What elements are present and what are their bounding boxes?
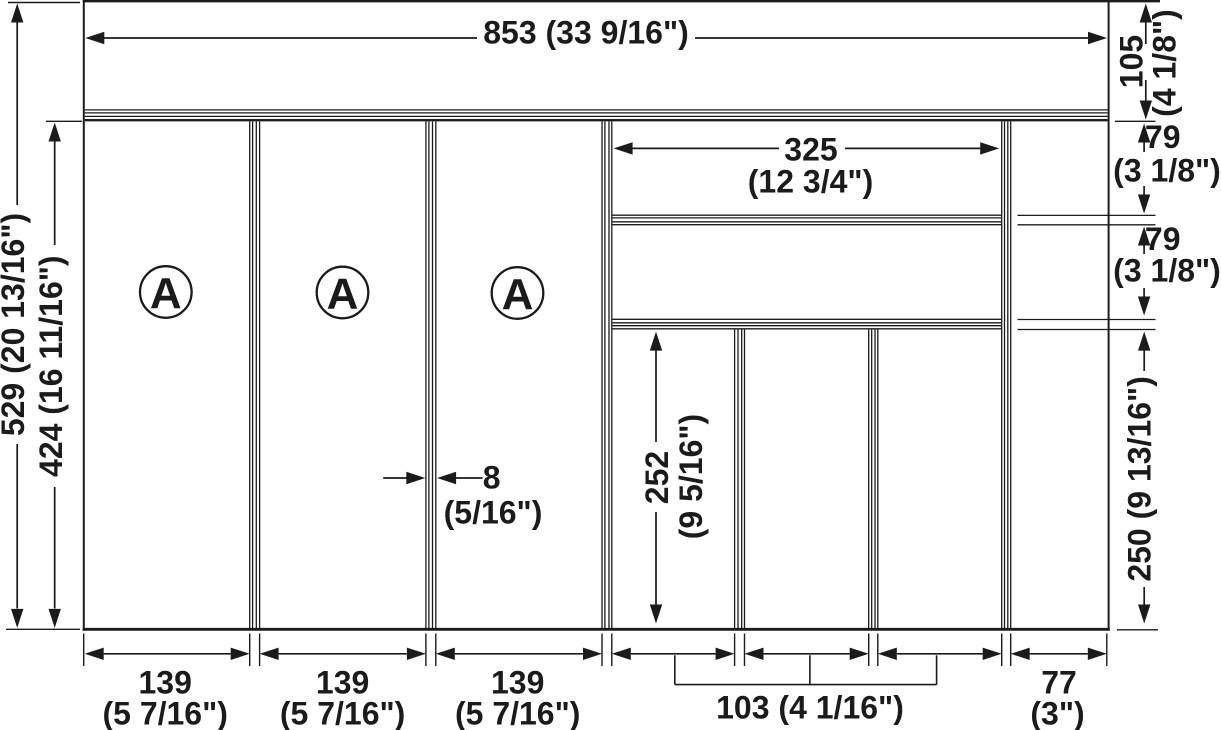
svg-text:79: 79	[1145, 119, 1181, 155]
svg-text:424 (16 11/16"): 424 (16 11/16")	[33, 255, 69, 477]
svg-text:A: A	[327, 270, 359, 319]
svg-text:A: A	[502, 270, 534, 319]
svg-text:103 (4 1/16"): 103 (4 1/16")	[716, 689, 904, 725]
svg-text:(12 3/4"): (12 3/4")	[748, 164, 873, 200]
svg-text:A: A	[150, 269, 182, 318]
svg-text:250 (9 13/16"): 250 (9 13/16")	[1122, 376, 1158, 582]
svg-text:(3 1/8"): (3 1/8")	[1113, 253, 1221, 289]
svg-text:529 (20 13/16"): 529 (20 13/16")	[0, 213, 31, 436]
svg-text:853 (33 9/16"): 853 (33 9/16")	[483, 14, 689, 50]
svg-text:(5 7/16"): (5 7/16")	[102, 696, 227, 730]
svg-text:(5/16"): (5/16")	[444, 495, 543, 531]
svg-text:(9 5/16"): (9 5/16")	[673, 414, 709, 539]
svg-text:105: 105	[1114, 35, 1150, 88]
svg-text:(3"): (3")	[1030, 696, 1084, 730]
svg-text:252: 252	[639, 451, 675, 504]
svg-text:(5 7/16"): (5 7/16")	[455, 696, 580, 730]
svg-text:(4 1/8"): (4 1/8")	[1147, 9, 1183, 117]
svg-text:325: 325	[784, 132, 837, 168]
svg-text:(5 7/16"): (5 7/16")	[280, 696, 405, 730]
svg-text:8: 8	[483, 459, 501, 495]
svg-text:(3 1/8"): (3 1/8")	[1113, 153, 1221, 189]
